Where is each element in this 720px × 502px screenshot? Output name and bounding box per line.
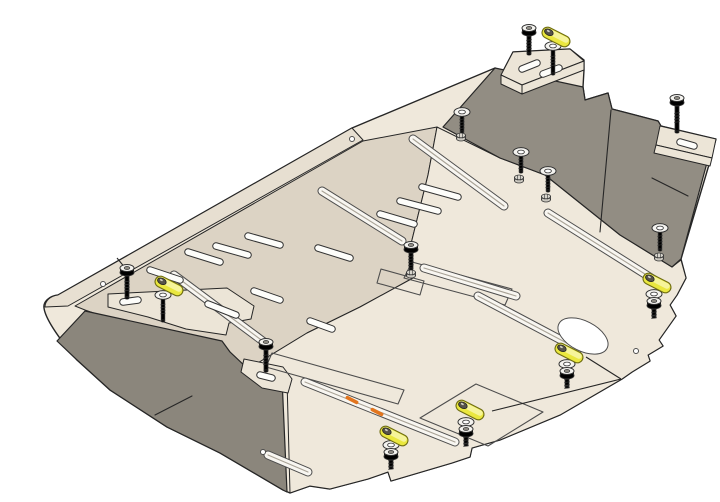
vent-slot (123, 300, 138, 302)
flange-bolt (670, 95, 684, 134)
round-hole (634, 349, 639, 354)
hex-nut (655, 253, 664, 261)
hex-nut (407, 270, 416, 278)
hex-nut (457, 133, 466, 141)
round-hole (101, 282, 106, 287)
diagram-canvas (0, 0, 720, 502)
hex-nut (542, 194, 551, 202)
vent-slot (260, 375, 272, 378)
round-hole (261, 450, 266, 455)
hex-nut (515, 175, 524, 183)
round-hole (350, 137, 355, 142)
vent-slot (680, 142, 694, 146)
skid-plate-diagram (0, 0, 720, 502)
